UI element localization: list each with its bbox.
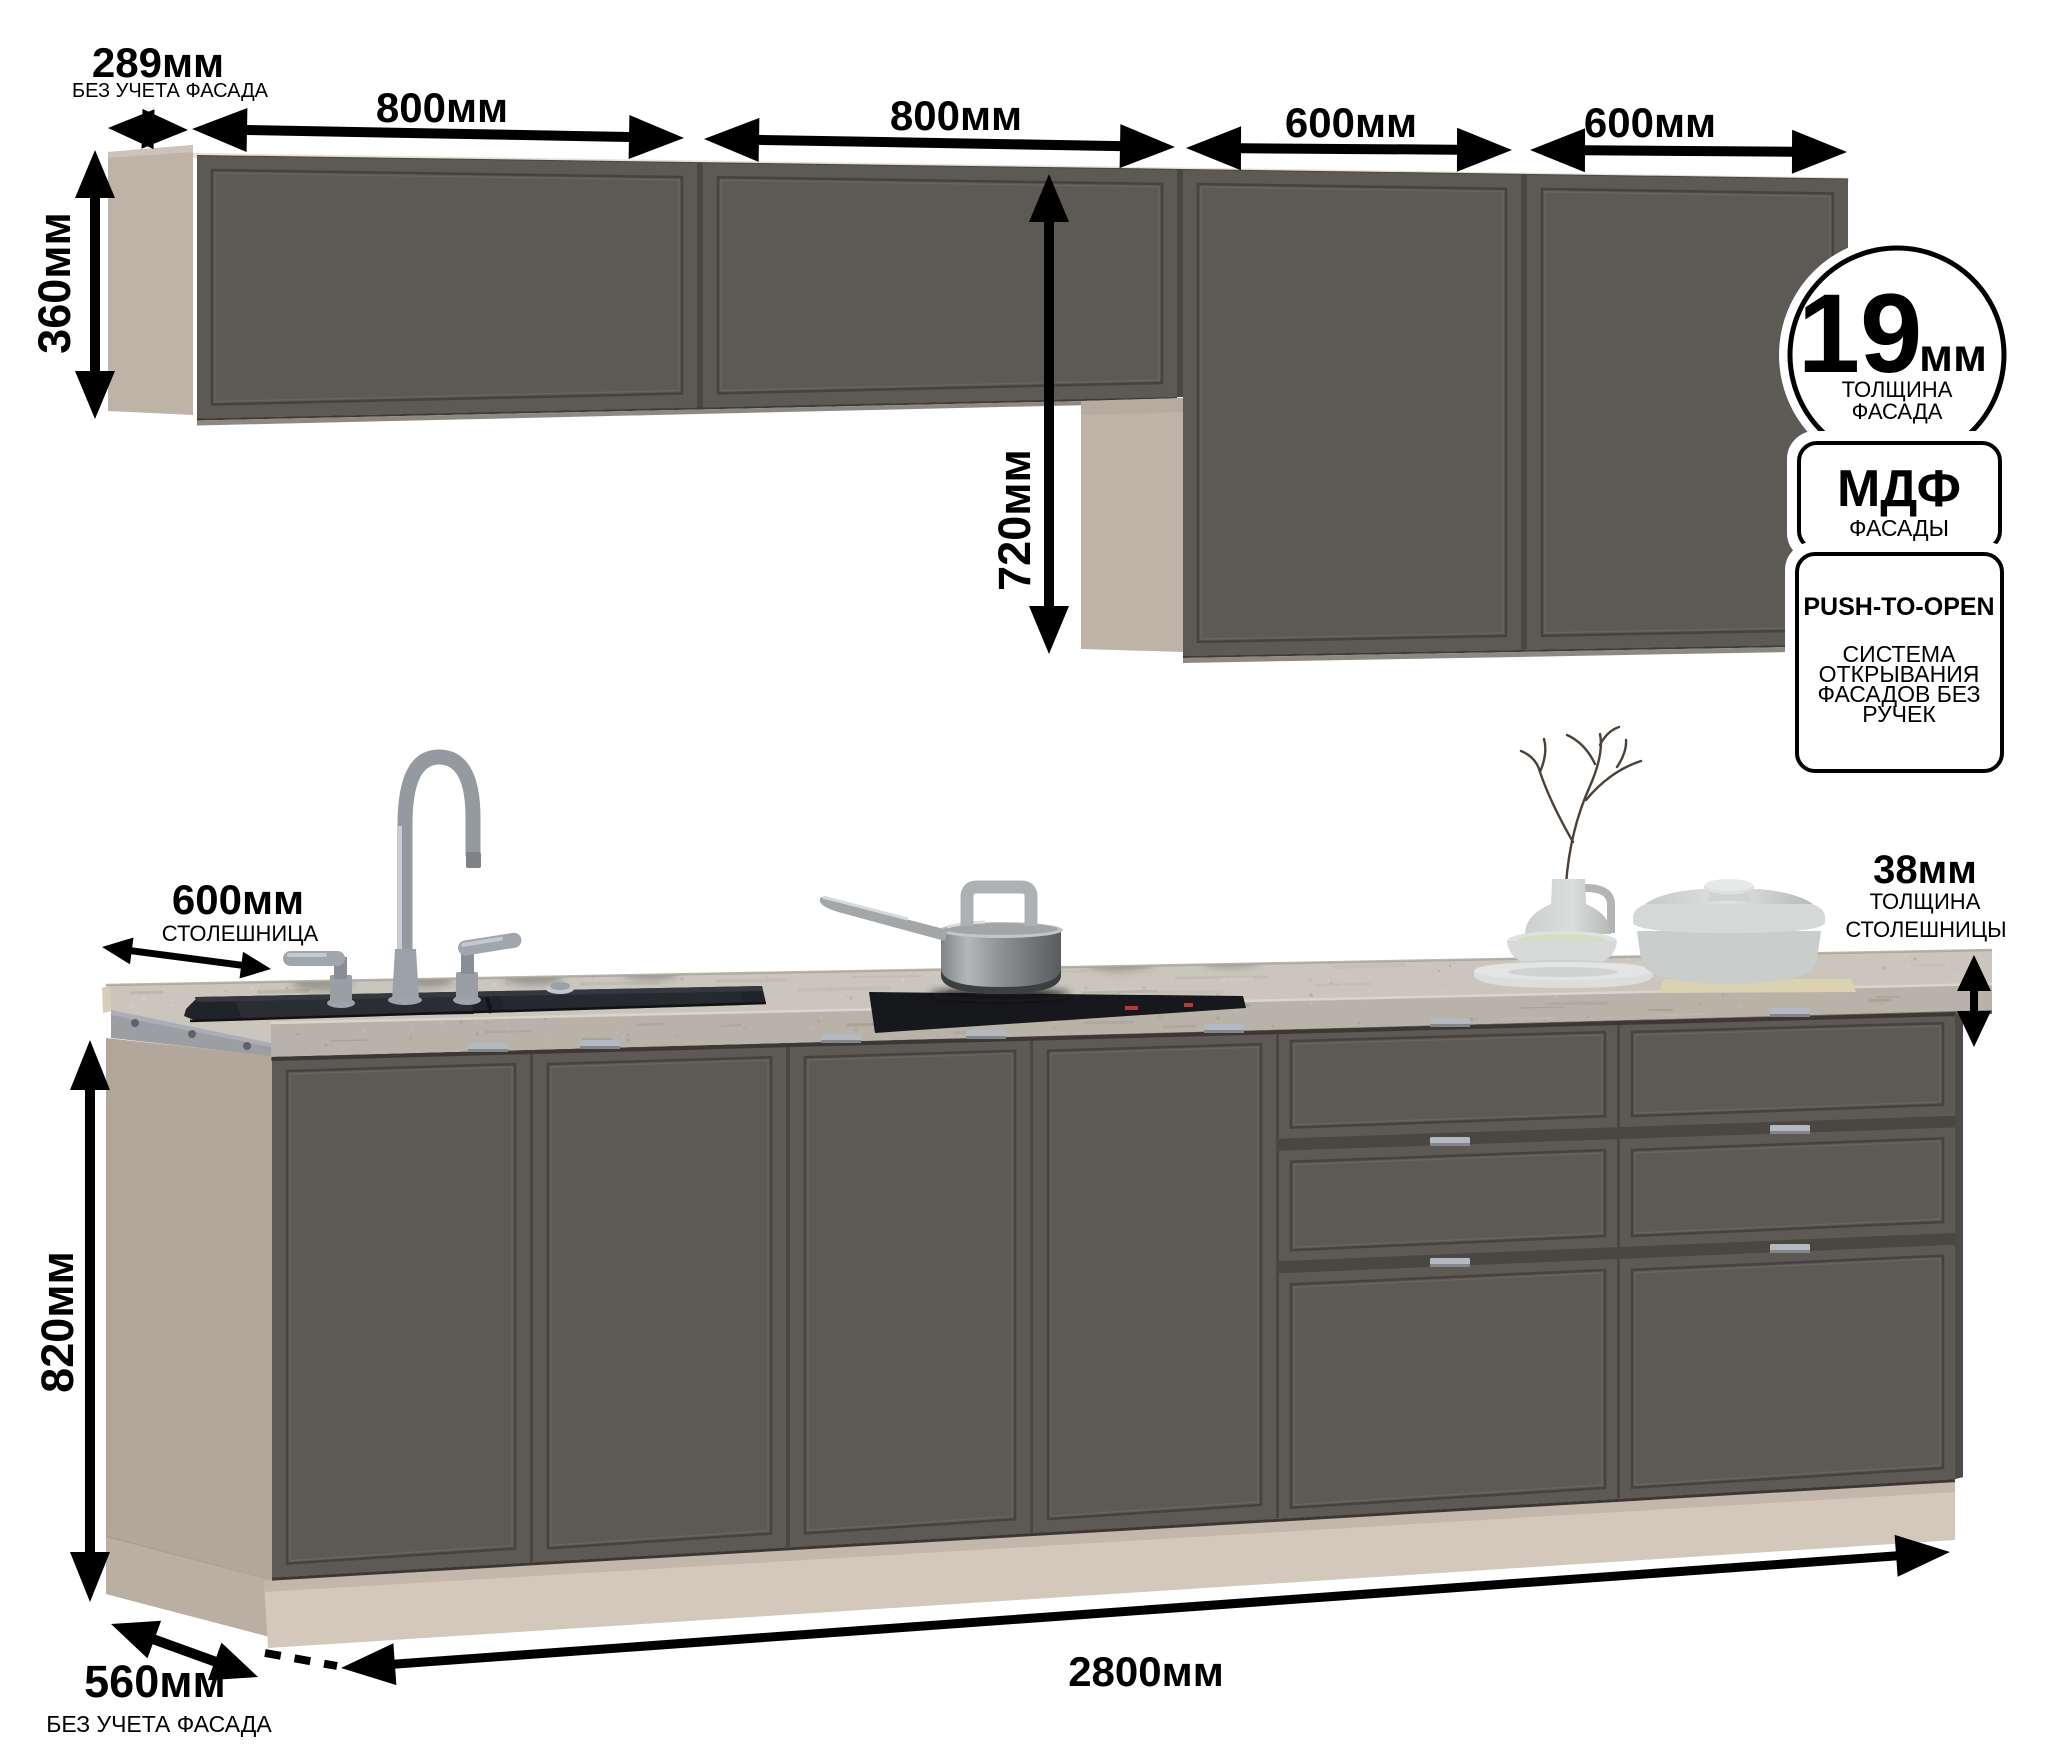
- svg-text:РУЧЕК: РУЧЕК: [1862, 701, 1936, 727]
- svg-text:БЕЗ УЧЕТА ФАСАДА: БЕЗ УЧЕТА ФАСАДА: [72, 80, 269, 102]
- svg-text:560мм: 560мм: [84, 1656, 226, 1707]
- svg-text:820мм: 820мм: [32, 1251, 83, 1393]
- svg-text:СТОЛЕШНИЦЫ: СТОЛЕШНИЦЫ: [1845, 917, 2006, 942]
- svg-text:СТОЛЕШНИЦА: СТОЛЕШНИЦА: [162, 921, 319, 946]
- svg-text:PUSH-TO-OPEN: PUSH-TO-OPEN: [1803, 593, 1994, 621]
- svg-text:2800мм: 2800мм: [1068, 1648, 1224, 1695]
- svg-text:ФАСАДЫ: ФАСАДЫ: [1849, 515, 1949, 541]
- svg-text:38мм: 38мм: [1873, 848, 1977, 892]
- svg-text:ТОЛЩИНА: ТОЛЩИНА: [1870, 889, 1981, 914]
- svg-text:360мм: 360мм: [29, 212, 80, 354]
- svg-text:600мм: 600мм: [1584, 99, 1716, 146]
- svg-text:289мм: 289мм: [92, 39, 224, 86]
- svg-text:800мм: 800мм: [376, 84, 508, 131]
- svg-text:600мм: 600мм: [1285, 99, 1417, 146]
- svg-text:МДФ: МДФ: [1837, 460, 1961, 518]
- svg-text:600мм: 600мм: [172, 876, 304, 923]
- svg-text:мм: мм: [1919, 329, 1987, 381]
- svg-text:720мм: 720мм: [989, 449, 1040, 591]
- svg-text:ФАСАДА: ФАСАДА: [1852, 399, 1943, 424]
- svg-text:800мм: 800мм: [890, 92, 1022, 139]
- svg-text:БЕЗ УЧЕТА ФАСАДА: БЕЗ УЧЕТА ФАСАДА: [46, 1711, 272, 1737]
